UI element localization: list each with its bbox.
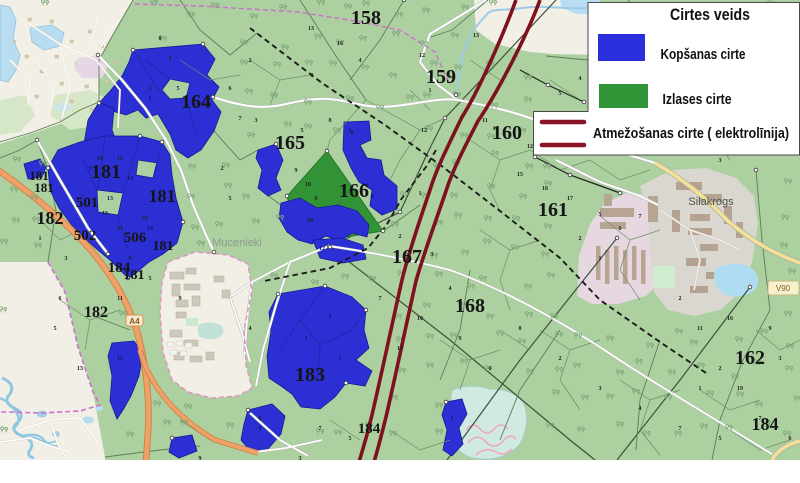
svg-text:13: 13	[308, 26, 314, 32]
svg-text:Silakrogs: Silakrogs	[688, 196, 734, 208]
svg-text:3: 3	[311, 73, 314, 79]
svg-text:2: 2	[329, 314, 332, 320]
svg-text:4: 4	[639, 406, 642, 412]
svg-text:12: 12	[319, 246, 325, 252]
svg-text:10: 10	[307, 218, 313, 224]
svg-text:2: 2	[249, 58, 252, 64]
svg-text:1: 1	[149, 96, 152, 102]
svg-text:162: 162	[735, 347, 765, 369]
svg-text:502: 502	[74, 228, 97, 244]
svg-text:9: 9	[769, 326, 772, 332]
svg-text:3: 3	[431, 252, 434, 258]
svg-text:2: 2	[579, 236, 582, 242]
svg-text:9: 9	[315, 196, 318, 202]
svg-text:12: 12	[419, 53, 425, 59]
svg-text:9: 9	[295, 168, 298, 174]
svg-text:9: 9	[351, 131, 354, 137]
svg-text:160: 160	[492, 122, 522, 144]
svg-text:5: 5	[349, 436, 352, 442]
svg-text:182: 182	[37, 208, 64, 228]
svg-text:1: 1	[599, 256, 602, 262]
svg-text:8: 8	[159, 36, 162, 42]
svg-text:1: 1	[429, 88, 432, 94]
svg-text:13: 13	[77, 366, 83, 372]
svg-text:7: 7	[679, 426, 682, 432]
svg-text:2: 2	[559, 356, 562, 362]
svg-text:14: 14	[127, 176, 133, 182]
svg-text:11: 11	[117, 296, 123, 302]
svg-text:5: 5	[559, 91, 562, 97]
svg-text:181: 181	[91, 161, 121, 183]
svg-text:501: 501	[76, 195, 99, 211]
svg-text:11: 11	[482, 118, 488, 124]
svg-text:10: 10	[305, 182, 311, 188]
svg-text:19: 19	[737, 386, 743, 392]
svg-text:6: 6	[619, 226, 622, 232]
svg-text:6: 6	[259, 416, 262, 422]
svg-text:5: 5	[599, 212, 602, 218]
svg-text:161: 161	[538, 199, 568, 221]
svg-text:1: 1	[699, 386, 702, 392]
svg-text:3: 3	[65, 256, 68, 262]
svg-text:2: 2	[719, 366, 722, 372]
svg-text:9: 9	[179, 296, 182, 302]
svg-text:15: 15	[517, 172, 523, 178]
svg-text:13: 13	[117, 356, 123, 362]
svg-text:4: 4	[249, 326, 252, 332]
svg-text:506: 506	[124, 230, 147, 246]
svg-text:184: 184	[752, 414, 779, 434]
svg-text:21: 21	[117, 226, 123, 232]
svg-text:5: 5	[149, 276, 152, 282]
svg-text:5: 5	[169, 56, 172, 62]
svg-text:6: 6	[59, 296, 62, 302]
svg-text:7: 7	[639, 214, 642, 220]
svg-text:9: 9	[259, 426, 262, 432]
svg-text:181: 181	[34, 180, 54, 195]
svg-text:2: 2	[221, 166, 224, 172]
svg-text:5: 5	[54, 326, 57, 332]
svg-text:7: 7	[319, 426, 322, 432]
svg-text:Izlases cirte: Izlases cirte	[663, 91, 732, 108]
svg-text:183: 183	[295, 364, 325, 386]
svg-text:184: 184	[358, 421, 381, 437]
svg-text:165: 165	[275, 132, 305, 154]
svg-text:1: 1	[305, 336, 308, 342]
svg-text:181: 181	[124, 268, 145, 283]
svg-text:Mucenieki: Mucenieki	[212, 237, 262, 249]
svg-text:10: 10	[417, 316, 423, 322]
svg-text:2: 2	[679, 296, 682, 302]
svg-text:168: 168	[455, 295, 485, 317]
svg-text:7: 7	[239, 116, 242, 122]
svg-text:167: 167	[392, 246, 422, 268]
svg-text:4: 4	[449, 286, 452, 292]
svg-text:2: 2	[399, 234, 402, 240]
svg-text:181: 181	[153, 239, 174, 254]
svg-text:9: 9	[459, 336, 462, 342]
svg-text:Cirtes veids: Cirtes veids	[670, 5, 750, 24]
svg-text:158: 158	[351, 7, 381, 29]
svg-text:8: 8	[329, 118, 332, 124]
svg-text:12: 12	[527, 144, 533, 150]
svg-text:3: 3	[779, 356, 782, 362]
svg-text:1: 1	[451, 416, 454, 422]
svg-text:13: 13	[102, 211, 108, 217]
svg-text:3: 3	[339, 356, 342, 362]
svg-text:16: 16	[337, 41, 343, 47]
svg-text:159: 159	[426, 66, 456, 88]
svg-text:3: 3	[255, 118, 258, 124]
svg-text:4: 4	[359, 58, 362, 64]
svg-text:7: 7	[379, 296, 382, 302]
svg-text:3: 3	[599, 386, 602, 392]
svg-text:Kopšanas cirte: Kopšanas cirte	[661, 46, 746, 63]
svg-text:11: 11	[697, 326, 703, 332]
svg-text:23: 23	[142, 216, 148, 222]
svg-text:Atmežošanas cirte ( elektrolīn: Atmežošanas cirte ( elektrolīnija)	[593, 125, 789, 142]
svg-text:1: 1	[149, 86, 152, 92]
svg-text:16: 16	[147, 226, 153, 232]
svg-text:A4: A4	[129, 317, 140, 326]
svg-text:164: 164	[181, 91, 211, 113]
svg-text:5: 5	[177, 86, 180, 92]
svg-text:6: 6	[789, 436, 792, 442]
svg-text:12: 12	[421, 128, 427, 134]
svg-text:6: 6	[489, 366, 492, 372]
svg-text:V90: V90	[776, 284, 791, 293]
svg-text:16: 16	[727, 316, 733, 322]
svg-text:4: 4	[579, 76, 582, 82]
svg-text:12: 12	[397, 346, 403, 352]
svg-text:5: 5	[229, 196, 232, 202]
svg-text:166: 166	[339, 180, 369, 202]
svg-text:16: 16	[542, 186, 548, 192]
svg-text:1: 1	[39, 236, 42, 242]
svg-text:5: 5	[719, 436, 722, 442]
svg-text:13: 13	[473, 33, 479, 39]
svg-text:182: 182	[84, 304, 108, 321]
svg-text:8: 8	[371, 194, 374, 200]
svg-text:3: 3	[719, 158, 722, 164]
svg-text:13: 13	[107, 196, 113, 202]
svg-text:181: 181	[149, 186, 176, 206]
svg-text:8: 8	[519, 326, 522, 332]
svg-text:6: 6	[229, 86, 232, 92]
svg-text:1: 1	[419, 191, 422, 197]
